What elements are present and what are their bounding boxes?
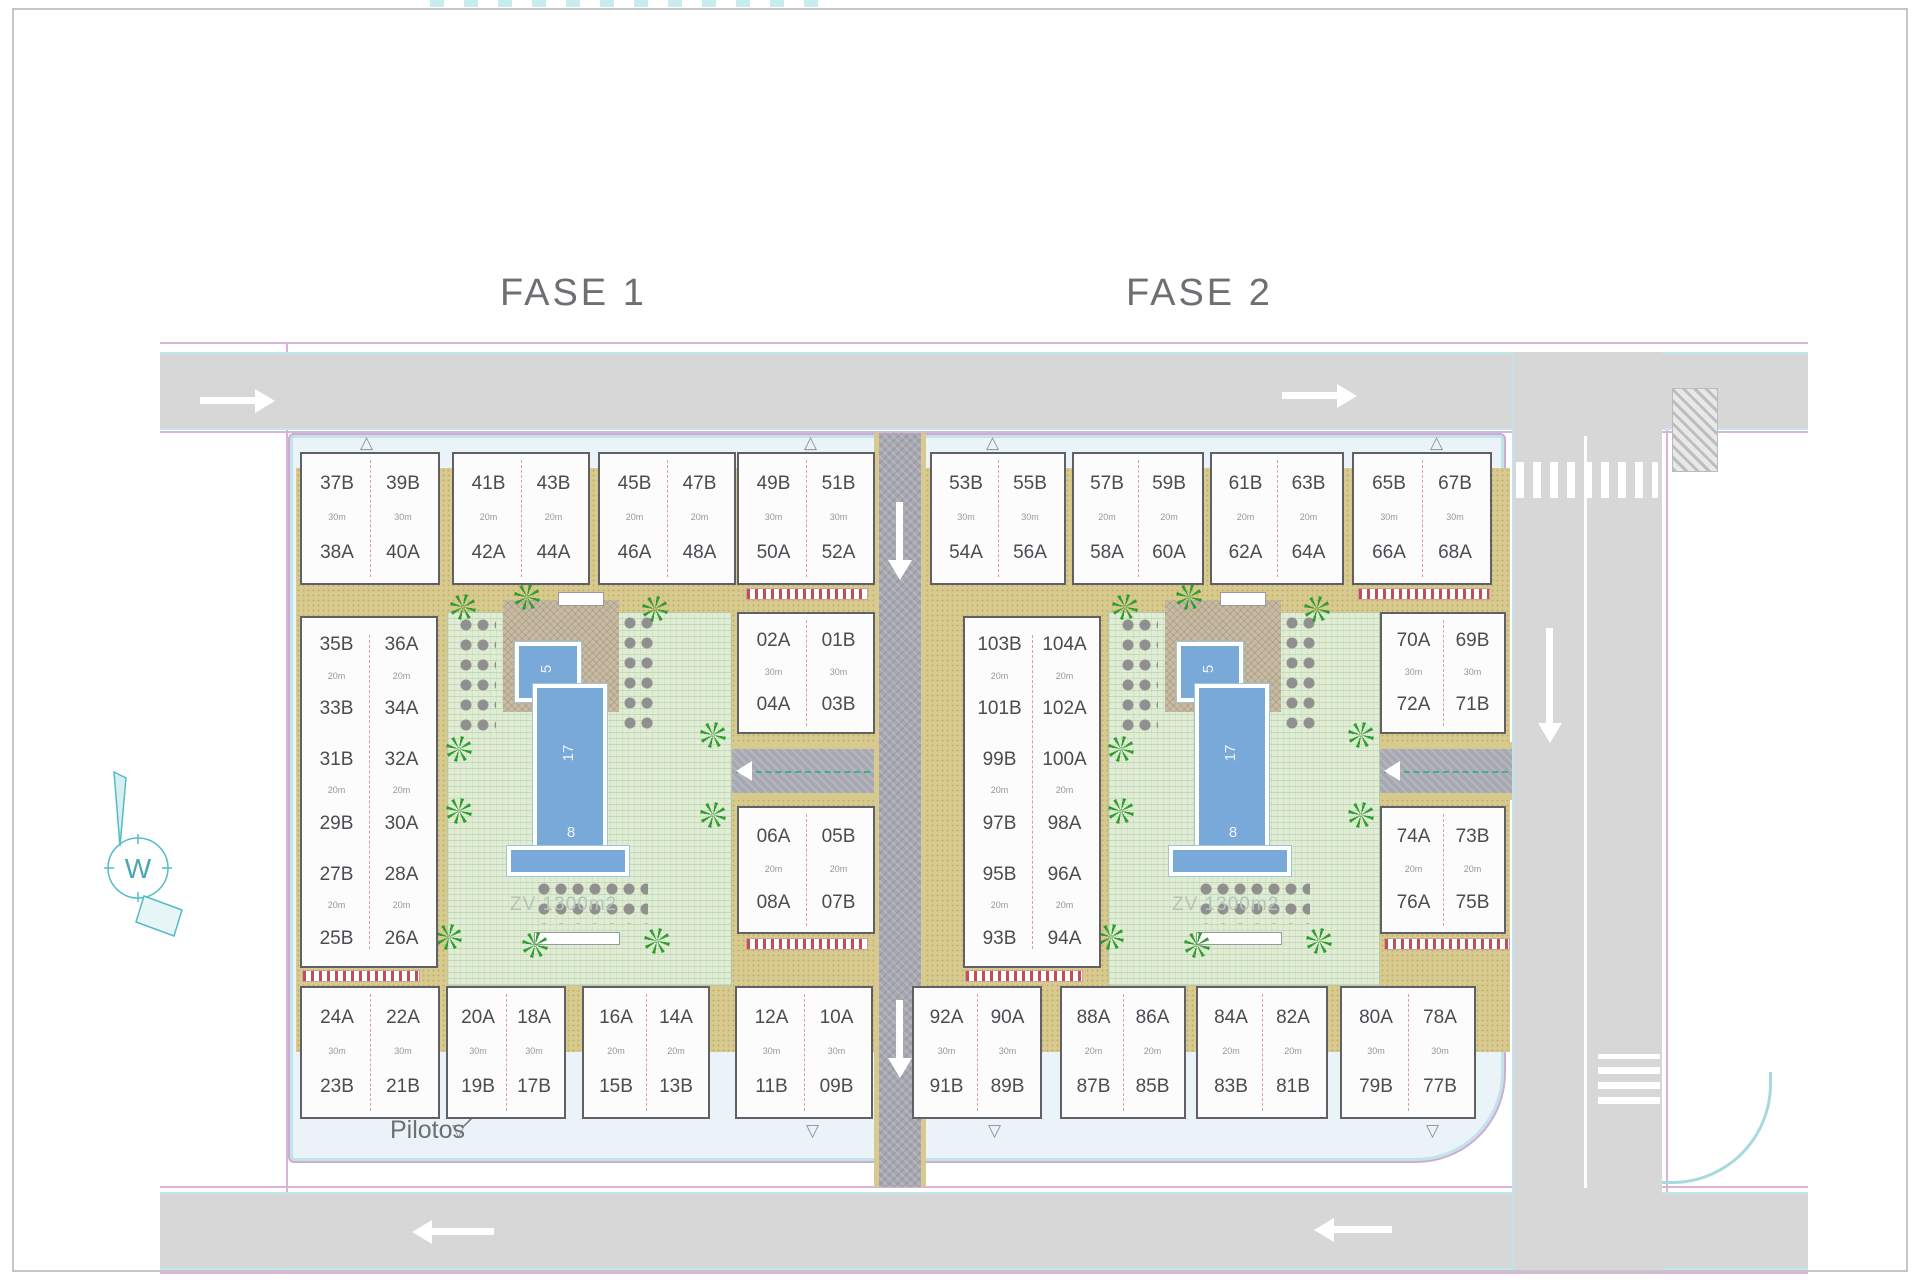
unit-label: 80A	[1344, 1007, 1408, 1029]
unit-label: 52A	[806, 542, 871, 564]
pool-dim-small: 5	[536, 658, 558, 680]
unit-label: 103B	[967, 634, 1032, 656]
unit-label: 23B	[304, 1076, 370, 1098]
unit-block: 12A10A30m30m11B09B	[735, 986, 873, 1119]
unit-label: 07B	[806, 892, 871, 914]
unit-block: 70A69B30m30m72A71B	[1380, 612, 1506, 734]
unit-label: 79B	[1344, 1076, 1408, 1098]
unit-label: 102A	[1032, 698, 1097, 720]
unit-area-label: 20m	[1262, 1046, 1324, 1059]
unit-label: 56A	[998, 542, 1062, 564]
boundary-line	[160, 342, 1808, 344]
unit-area-label: 20m	[1123, 1046, 1182, 1059]
unit-area-label: 30m	[370, 512, 436, 525]
unit-area-label: 30m	[741, 667, 806, 680]
unit-area-label: 20m	[1138, 512, 1200, 525]
traffic-arrow-right-icon	[1282, 392, 1337, 399]
palm-tree-icon	[1112, 594, 1138, 620]
unit-label: 82A	[1262, 1007, 1324, 1029]
site-plan: FASE 1 FASE 2 5 17 8 ZV 1300m2	[0, 0, 1920, 1280]
unit-area-label: 20m	[1032, 900, 1097, 913]
palm-tree-icon	[1348, 722, 1374, 748]
unit-label: 104A	[1032, 634, 1097, 656]
unit-area-label: 20m	[1443, 864, 1502, 877]
bench	[558, 592, 604, 606]
door-marker-up-icon: △	[986, 434, 999, 451]
unit-label: 35B	[304, 634, 369, 656]
bench	[1220, 592, 1266, 606]
unit-area-label: 20m	[369, 785, 434, 798]
traffic-arrow-left-icon	[432, 1228, 494, 1235]
unit-label: 69B	[1443, 630, 1502, 652]
unit-area-label: 20m	[1032, 785, 1097, 798]
unit-area-label: 20m	[1277, 512, 1340, 525]
green-area-label: ZV 1300m2	[510, 894, 670, 916]
unit-label: 22A	[370, 1007, 436, 1029]
traffic-arrow-down-icon	[896, 502, 903, 560]
door-marker-down-icon: ▽	[806, 1122, 819, 1139]
compass-letter: W	[125, 853, 152, 884]
unit-label: 12A	[739, 1007, 804, 1029]
unit-label: 02A	[741, 630, 806, 652]
palm-tree-icon	[700, 722, 726, 748]
unit-block: 24A22A30m30m23B21B	[300, 986, 440, 1119]
unit-area-label: 20m	[369, 900, 434, 913]
unit-area-label: 30m	[450, 1046, 506, 1059]
unit-label: 10A	[804, 1007, 869, 1029]
unit-area-label: 30m	[1422, 512, 1488, 525]
unit-block: 20A18A30m30m19B17B	[446, 986, 566, 1119]
unit-area-label: 20m	[646, 1046, 706, 1059]
palm-tree-icon	[1108, 798, 1134, 824]
unit-block: 80A78A30m30m79B77B	[1340, 986, 1476, 1119]
unit-label: 94A	[1032, 928, 1097, 950]
unit-area-label: 30m	[304, 1046, 370, 1059]
unit-area-label: 30m	[370, 1046, 436, 1059]
unit-label: 09B	[804, 1076, 869, 1098]
unit-label: 78A	[1408, 1007, 1472, 1029]
pilotos-label: Pilotos	[390, 1116, 465, 1145]
unit-label: 97B	[967, 813, 1032, 835]
palm-tree-icon	[514, 584, 540, 610]
unit-label: 86A	[1123, 1007, 1182, 1029]
unit-block: 16A14A20m20m15B13B	[582, 986, 710, 1119]
unit-block: 53B55B30m30m54A56A	[930, 452, 1066, 585]
unit-block: 92A90A30m30m91B89B	[912, 986, 1042, 1119]
unit-label: 03B	[806, 694, 871, 716]
unit-area-label: 30m	[934, 512, 998, 525]
unit-label: 49B	[741, 473, 806, 495]
phase1-entrance-road	[732, 742, 874, 800]
unit-label: 55B	[998, 473, 1062, 495]
door-marker-up-icon: △	[1430, 434, 1443, 451]
door-marker-down-icon: ▽	[988, 1122, 1001, 1139]
door-marker-up-icon: △	[360, 434, 373, 451]
palm-tree-icon	[1184, 932, 1210, 958]
sun-loungers	[622, 614, 654, 734]
unit-area-label: 20m	[967, 671, 1032, 684]
boundary-line	[160, 1272, 1808, 1274]
unit-block: 49B51B30m30m50A52A	[737, 452, 875, 585]
unit-label: 100A	[1032, 749, 1097, 771]
palm-tree-icon	[644, 928, 670, 954]
entrance-arrow-icon	[1384, 761, 1400, 781]
palm-tree-icon	[1176, 584, 1202, 610]
unit-label: 87B	[1064, 1076, 1123, 1098]
entrance-arrow-icon	[736, 761, 752, 781]
striped-strip	[1358, 588, 1490, 600]
traffic-arrow-right-icon	[200, 397, 255, 404]
unit-label: 66A	[1356, 542, 1422, 564]
unit-area-label: 20m	[304, 671, 369, 684]
unit-label: 88A	[1064, 1007, 1123, 1029]
unit-label: 41B	[456, 473, 521, 495]
unit-label: 36A	[369, 634, 434, 656]
unit-area-label: 30m	[304, 512, 370, 525]
palm-tree-icon	[1348, 802, 1374, 828]
unit-label: 06A	[741, 826, 806, 848]
unit-label: 46A	[602, 542, 667, 564]
unit-area-label: 20m	[304, 785, 369, 798]
unit-label: 81B	[1262, 1076, 1324, 1098]
unit-label: 71B	[1443, 694, 1502, 716]
unit-block: 41B43B20m20m42A44A	[452, 452, 590, 585]
unit-label: 17B	[506, 1076, 562, 1098]
unit-label: 16A	[586, 1007, 646, 1029]
unit-label: 01B	[806, 630, 871, 652]
unit-area-label: 20m	[1200, 1046, 1262, 1059]
phase2-title: FASE 2	[1126, 272, 1273, 315]
unit-block: 35B36A20m20m33B34A31B32A20m20m29B30A27B2…	[300, 616, 438, 968]
palm-tree-icon	[436, 924, 462, 950]
unit-label: 62A	[1214, 542, 1277, 564]
unit-area-label: 20m	[806, 864, 871, 877]
unit-block: 06A05B20m20m08A07B	[737, 806, 875, 934]
unit-label: 57B	[1076, 473, 1138, 495]
unit-area-label: 30m	[1344, 1046, 1408, 1059]
palm-tree-icon	[1108, 736, 1134, 762]
unit-area-label: 20m	[667, 512, 732, 525]
unit-label: 24A	[304, 1007, 370, 1029]
unit-label: 72A	[1384, 694, 1443, 716]
unit-area-label: 20m	[456, 512, 521, 525]
palm-tree-icon	[522, 932, 548, 958]
pool-dim-width: 8	[560, 822, 582, 844]
unit-label: 89B	[977, 1076, 1038, 1098]
unit-block: 37B39B30m30m38A40A	[300, 452, 440, 585]
striped-strip	[746, 588, 868, 600]
crosswalk	[1516, 462, 1658, 498]
unit-label: 34A	[369, 698, 434, 720]
green-area-label: ZV 1300m2	[1172, 894, 1332, 916]
unit-label: 20A	[450, 1007, 506, 1029]
crosswalk	[1598, 1054, 1660, 1104]
unit-label: 14A	[646, 1007, 706, 1029]
palm-tree-icon	[1098, 924, 1124, 950]
traffic-arrow-down-icon	[1546, 628, 1553, 723]
unit-label: 54A	[934, 542, 998, 564]
unit-label: 28A	[369, 864, 434, 886]
unit-label: 37B	[304, 473, 370, 495]
unit-area-label: 20m	[586, 1046, 646, 1059]
unit-label: 98A	[1032, 813, 1097, 835]
unit-area-label: 20m	[967, 785, 1032, 798]
road-median-line	[1584, 436, 1587, 1188]
unit-label: 44A	[521, 542, 586, 564]
palm-tree-icon	[446, 798, 472, 824]
palm-tree-icon	[642, 596, 668, 622]
unit-label: 53B	[934, 473, 998, 495]
door-marker-up-icon: △	[804, 434, 817, 451]
unit-label: 58A	[1076, 542, 1138, 564]
unit-label: 21B	[370, 1076, 436, 1098]
unit-area-label: 30m	[916, 1046, 977, 1059]
unit-label: 39B	[370, 473, 436, 495]
unit-label: 70A	[1384, 630, 1443, 652]
sun-loungers	[458, 616, 496, 736]
unit-area-label: 20m	[521, 512, 586, 525]
unit-area-label: 20m	[602, 512, 667, 525]
unit-area-label: 20m	[304, 900, 369, 913]
unit-block: 65B67B30m30m66A68A	[1352, 452, 1492, 585]
unit-label: 19B	[450, 1076, 506, 1098]
traffic-arrow-down-icon	[896, 1000, 903, 1058]
unit-label: 93B	[967, 928, 1032, 950]
unit-area-label: 30m	[1408, 1046, 1472, 1059]
unit-label: 77B	[1408, 1076, 1472, 1098]
traffic-arrow-left-icon	[1334, 1226, 1392, 1233]
striped-strip	[302, 970, 420, 982]
unit-label: 59B	[1138, 473, 1200, 495]
unit-block: 88A86A20m20m87B85B	[1060, 986, 1186, 1119]
unit-label: 47B	[667, 473, 732, 495]
unit-area-label: 20m	[741, 864, 806, 877]
unit-area-label: 30m	[741, 512, 806, 525]
unit-label: 75B	[1443, 892, 1502, 914]
unit-label: 76A	[1384, 892, 1443, 914]
unit-label: 73B	[1443, 826, 1502, 848]
unit-block: 02A01B30m30m04A03B	[737, 612, 875, 734]
unit-label: 85B	[1123, 1076, 1182, 1098]
door-marker-down-icon: ▽	[1426, 1122, 1439, 1139]
striped-strip	[1384, 938, 1510, 950]
unit-label: 83B	[1200, 1076, 1262, 1098]
unit-area-label: 30m	[1384, 667, 1443, 680]
unit-label: 15B	[586, 1076, 646, 1098]
unit-label: 63B	[1277, 473, 1340, 495]
palm-tree-icon	[1306, 928, 1332, 954]
unit-label: 50A	[741, 542, 806, 564]
unit-block: 45B47B20m20m46A48A	[598, 452, 736, 585]
sun-loungers	[1284, 614, 1316, 734]
palm-tree-icon	[700, 802, 726, 828]
unit-block: 57B59B20m20m58A60A	[1072, 452, 1204, 585]
unit-label: 65B	[1356, 473, 1422, 495]
unit-label: 11B	[739, 1076, 804, 1098]
unit-label: 95B	[967, 864, 1032, 886]
unit-area-label: 30m	[804, 1046, 869, 1059]
unit-label: 64A	[1277, 542, 1340, 564]
unit-label: 05B	[806, 826, 871, 848]
unit-label: 30A	[369, 813, 434, 835]
unit-area-label: 20m	[1384, 864, 1443, 877]
unit-label: 31B	[304, 749, 369, 771]
unit-area-label: 30m	[998, 512, 1062, 525]
unit-label: 99B	[967, 749, 1032, 771]
unit-label: 101B	[967, 698, 1032, 720]
unit-area-label: 20m	[1076, 512, 1138, 525]
unit-label: 25B	[304, 928, 369, 950]
unit-label: 90A	[977, 1007, 1038, 1029]
unit-label: 91B	[916, 1076, 977, 1098]
unit-block: 103B104A20m20m101B102A99B100A20m20m97B98…	[963, 616, 1101, 968]
unit-area-label: 20m	[1064, 1046, 1123, 1059]
unit-label: 43B	[521, 473, 586, 495]
unit-label: 04A	[741, 694, 806, 716]
palm-tree-icon	[1304, 596, 1330, 622]
unit-label: 51B	[806, 473, 871, 495]
unit-label: 74A	[1384, 826, 1443, 848]
unit-label: 45B	[602, 473, 667, 495]
unit-label: 08A	[741, 892, 806, 914]
unit-area-label: 20m	[1032, 671, 1097, 684]
pool-dim-length: 17	[558, 742, 580, 764]
unit-area-label: 30m	[1443, 667, 1502, 680]
phase1-title: FASE 1	[500, 272, 647, 315]
unit-label: 27B	[304, 864, 369, 886]
striped-strip	[746, 938, 868, 950]
compass: W	[86, 768, 206, 940]
unit-label: 32A	[369, 749, 434, 771]
unit-label: 68A	[1422, 542, 1488, 564]
unit-label: 96A	[1032, 864, 1097, 886]
unit-label: 42A	[456, 542, 521, 564]
unit-label: 38A	[304, 542, 370, 564]
unit-block: 84A82A20m20m83B81B	[1196, 986, 1328, 1119]
striped-strip	[965, 970, 1083, 982]
unit-area-label: 20m	[369, 671, 434, 684]
unit-area-label: 30m	[1356, 512, 1422, 525]
unit-label: 40A	[370, 542, 436, 564]
pool-dim-small: 5	[1198, 658, 1220, 680]
road-hatch-marking	[1672, 388, 1718, 472]
unit-area-label: 30m	[739, 1046, 804, 1059]
unit-area-label: 20m	[1214, 512, 1277, 525]
unit-block: 74A73B20m20m76A75B	[1380, 806, 1506, 934]
unit-area-label: 30m	[977, 1046, 1038, 1059]
unit-block: 61B63B20m20m62A64A	[1210, 452, 1344, 585]
unit-label: 84A	[1200, 1007, 1262, 1029]
unit-area-label: 30m	[806, 512, 871, 525]
unit-area-label: 30m	[506, 1046, 562, 1059]
unit-label: 18A	[506, 1007, 562, 1029]
palm-tree-icon	[446, 736, 472, 762]
unit-label: 48A	[667, 542, 732, 564]
unit-label: 26A	[369, 928, 434, 950]
cropped-title-fragment	[430, 0, 820, 7]
pool-dim-length: 17	[1220, 742, 1242, 764]
unit-label: 61B	[1214, 473, 1277, 495]
unit-label: 60A	[1138, 542, 1200, 564]
unit-area-label: 20m	[967, 900, 1032, 913]
sun-loungers	[1120, 616, 1158, 736]
pool-base	[1169, 846, 1291, 876]
unit-label: 92A	[916, 1007, 977, 1029]
unit-area-label: 30m	[806, 667, 871, 680]
unit-label: 67B	[1422, 473, 1488, 495]
unit-label: 33B	[304, 698, 369, 720]
palm-tree-icon	[450, 594, 476, 620]
pool-base	[507, 846, 629, 876]
unit-label: 13B	[646, 1076, 706, 1098]
unit-label: 29B	[304, 813, 369, 835]
pool-dim-width: 8	[1222, 822, 1244, 844]
